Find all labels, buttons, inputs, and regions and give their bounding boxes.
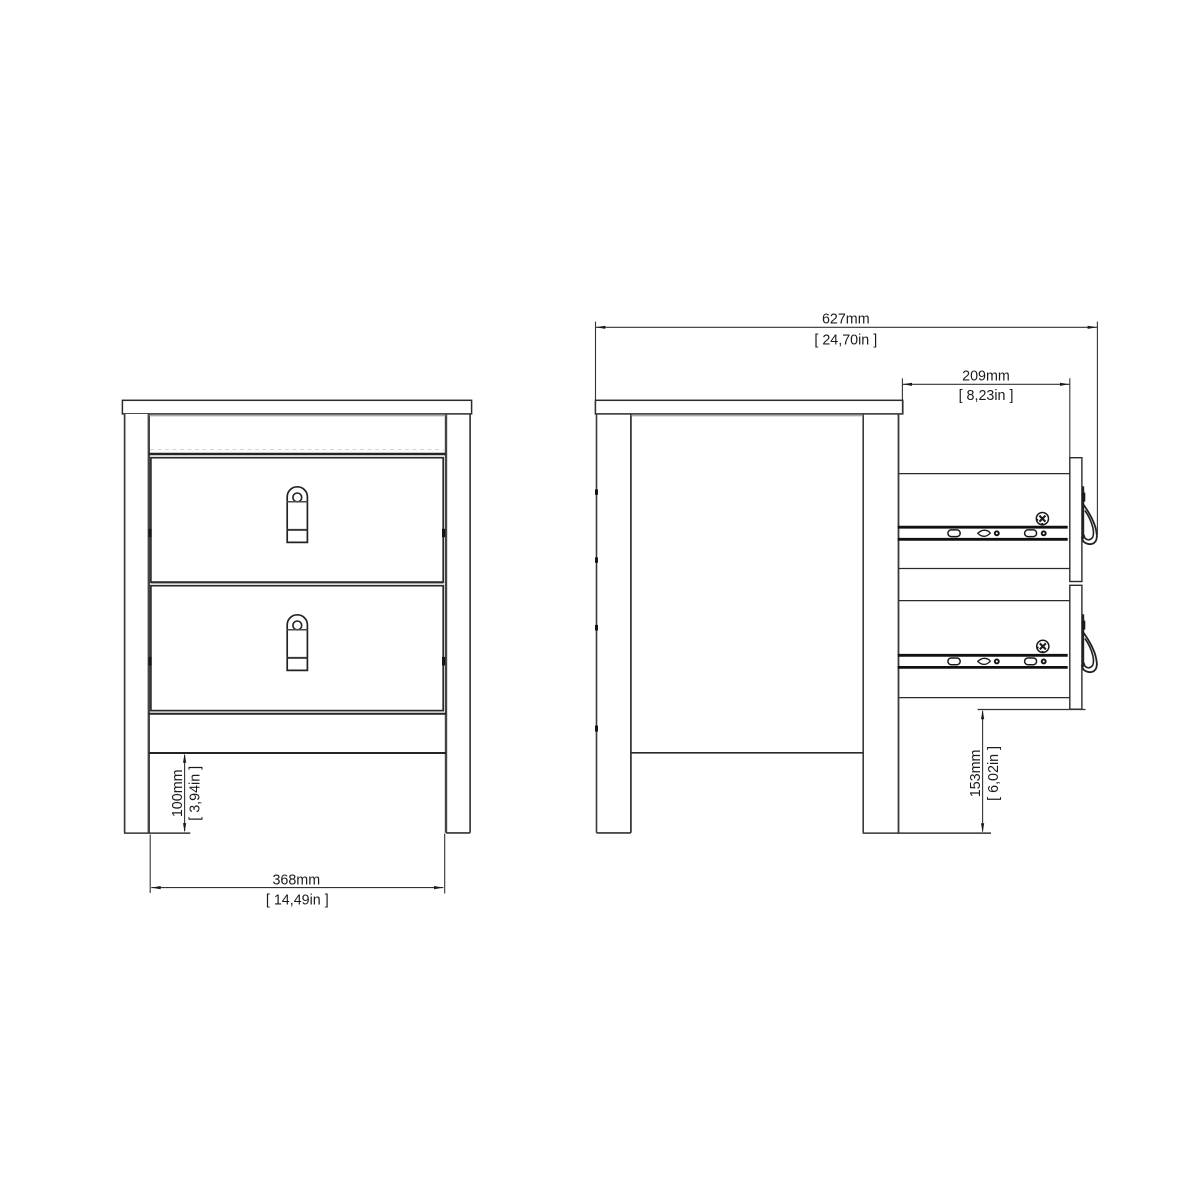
svg-text:368mm: 368mm [272, 873, 320, 889]
svg-text:[ 6,02in ]: [ 6,02in ] [986, 746, 1002, 801]
svg-text:[ 3,94in ]: [ 3,94in ] [188, 766, 204, 821]
svg-text:627mm: 627mm [822, 312, 870, 328]
svg-text:[ 14,49in ]: [ 14,49in ] [266, 892, 329, 908]
svg-text:[ 24,70in ]: [ 24,70in ] [814, 333, 877, 349]
svg-text:153mm: 153mm [968, 750, 984, 798]
svg-text:[ 8,23in ]: [ 8,23in ] [959, 388, 1014, 404]
svg-text:209mm: 209mm [962, 368, 1010, 384]
svg-text:100mm: 100mm [170, 769, 186, 817]
